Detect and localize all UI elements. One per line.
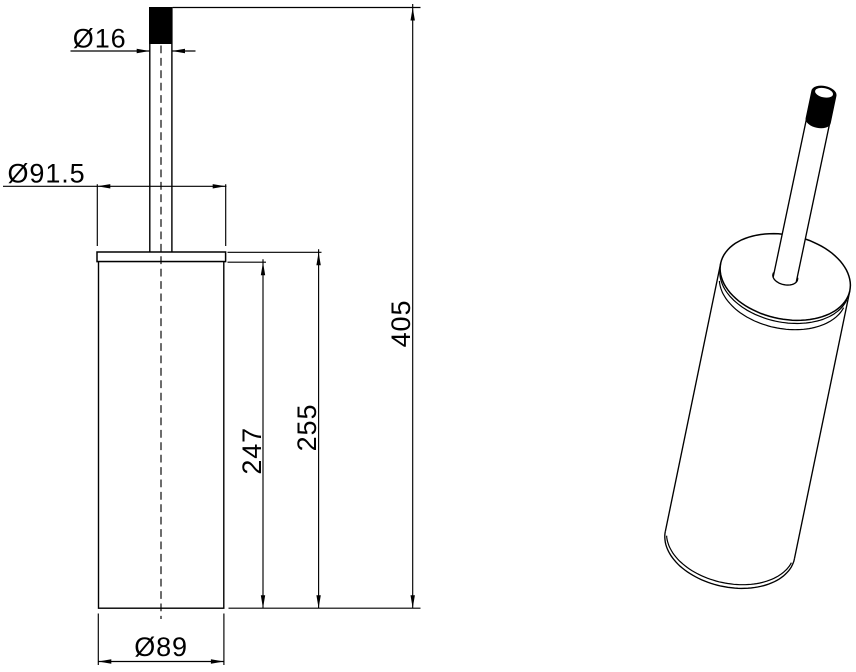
svg-text:Ø91.5: Ø91.5 <box>8 159 86 189</box>
svg-text:247: 247 <box>237 427 267 475</box>
svg-text:Ø16: Ø16 <box>73 24 127 54</box>
svg-text:405: 405 <box>386 300 416 348</box>
svg-text:Ø89: Ø89 <box>134 632 188 662</box>
svg-text:255: 255 <box>292 404 322 452</box>
